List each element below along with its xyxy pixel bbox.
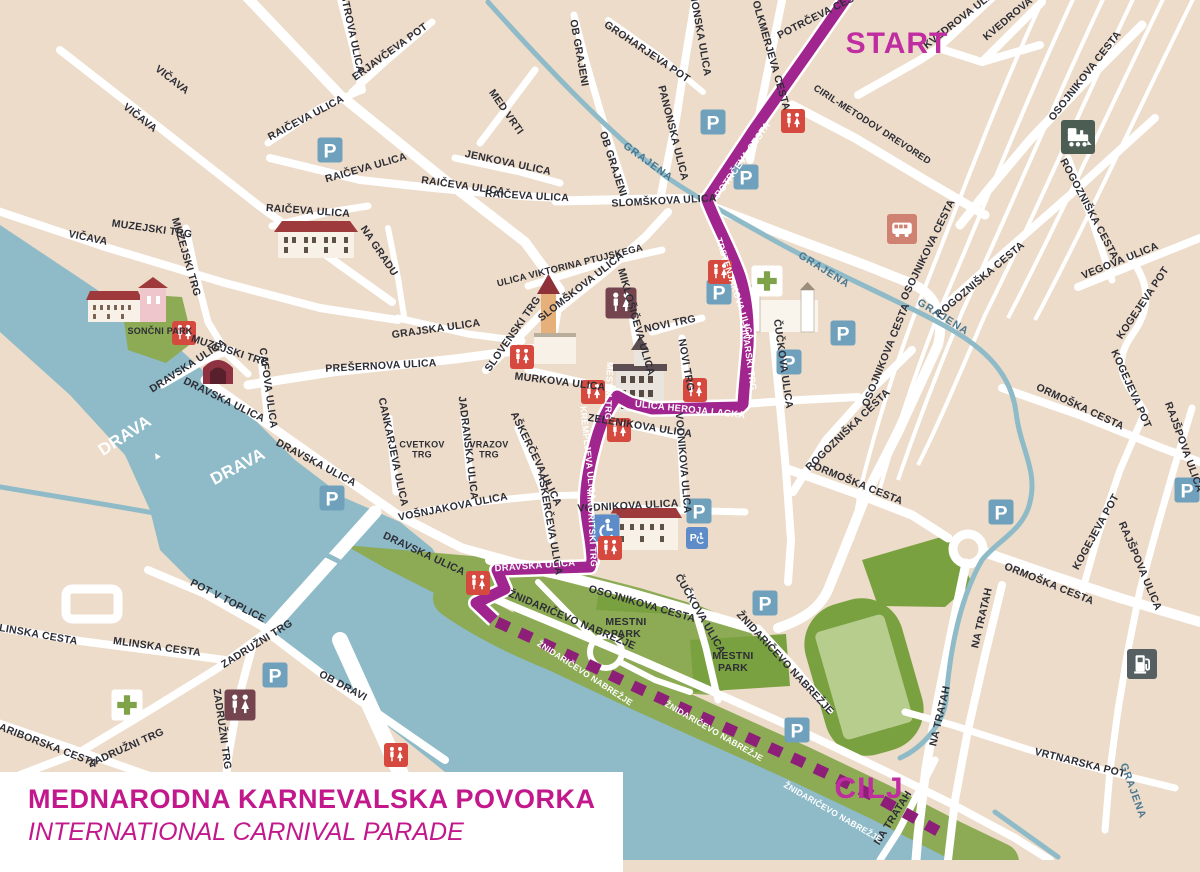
parking-icon: P — [831, 321, 856, 346]
svg-text:P: P — [323, 141, 336, 163]
parking-icon: P — [1175, 478, 1200, 503]
toilets-icon — [172, 321, 196, 345]
svg-text:P: P — [325, 489, 338, 511]
parking-icon: P — [263, 663, 288, 688]
toilets-icon — [598, 536, 622, 560]
svg-text:P: P — [268, 666, 281, 688]
fuel-station-icon — [1127, 649, 1157, 679]
map-title-slovenian: MEDNARODNA KARNEVALSKA POVORKA — [28, 784, 603, 815]
train-station-icon — [1061, 120, 1095, 154]
bus-station-icon — [887, 214, 917, 244]
parking-icon: P — [318, 138, 343, 163]
svg-text:P: P — [782, 353, 795, 375]
parking-icon: P — [989, 500, 1014, 525]
svg-text:P: P — [1180, 481, 1193, 503]
svg-text:P: P — [739, 168, 752, 190]
city-map-canvas: P — [0, 0, 1200, 860]
svg-text:P: P — [692, 502, 705, 524]
monastery-building — [274, 221, 358, 258]
toilets-icon — [581, 380, 605, 404]
carnival-parade-map: P — [0, 0, 1200, 860]
route-finish-label: CILJ — [834, 772, 903, 806]
toilets-icon — [708, 260, 732, 284]
svg-text:P: P — [790, 721, 803, 743]
pharmacy-icon — [112, 690, 143, 721]
toilets-icon — [225, 690, 256, 721]
disabled-parking-icon — [686, 527, 708, 549]
parking-icon: P — [753, 591, 778, 616]
toilets-icon — [466, 571, 490, 595]
title-card: MEDNARODNA KARNEVALSKA POVORKA INTERNATI… — [0, 772, 623, 872]
toilets-icon — [606, 288, 637, 319]
route-start-label: START — [846, 27, 949, 61]
parking-icon: P — [777, 350, 802, 375]
parking-icon: P — [734, 165, 759, 190]
pharmacy-icon — [752, 266, 783, 297]
toilets-icon — [781, 109, 805, 133]
parking-icon: P — [320, 486, 345, 511]
toilets-icon — [510, 345, 534, 369]
toilets-icon — [683, 378, 707, 402]
toilets-icon — [384, 743, 408, 767]
parking-icon: P — [687, 499, 712, 524]
toilets-icon — [607, 418, 631, 442]
map-title-english: INTERNATIONAL CARNIVAL PARADE — [28, 818, 603, 847]
svg-text:P: P — [836, 324, 849, 346]
svg-text:P: P — [994, 503, 1007, 525]
parking-icon: P — [701, 110, 726, 135]
svg-text:P: P — [712, 283, 725, 305]
parking-icon: P — [785, 718, 810, 743]
svg-text:P: P — [758, 594, 771, 616]
svg-text:P: P — [706, 113, 719, 135]
